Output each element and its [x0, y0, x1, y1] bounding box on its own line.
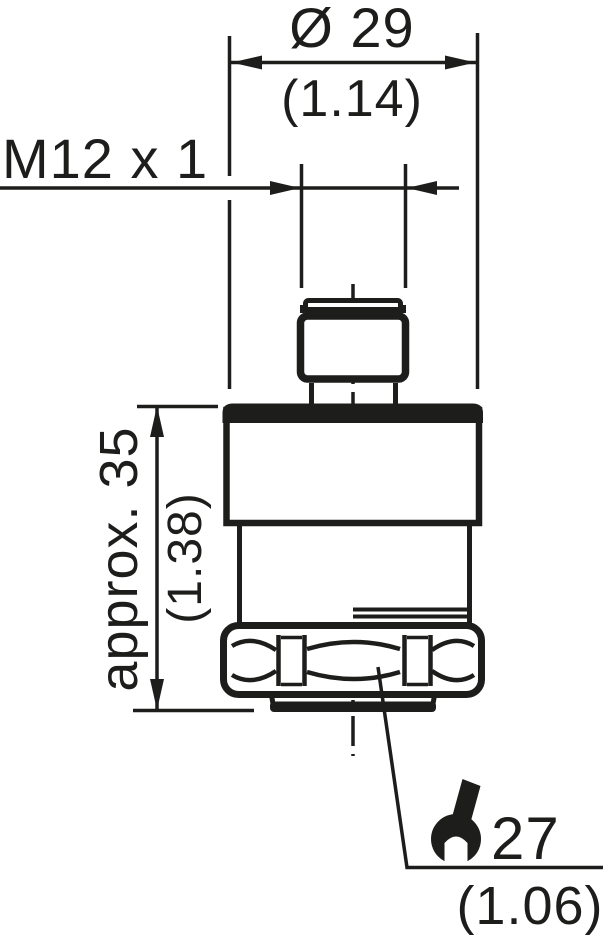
thread-label: M12 x 1 — [2, 127, 208, 190]
height-imperial-label: (1.38) — [159, 492, 212, 623]
top-cap-band — [223, 404, 484, 424]
wrench-icon — [431, 779, 481, 866]
diameter-metric-label: Ø 29 — [289, 0, 414, 59]
arrowhead-left-icon — [232, 56, 263, 70]
wrench-jaw-opening — [445, 837, 468, 867]
thread-block-outline — [301, 316, 406, 379]
arrowhead-right-icon — [270, 181, 300, 195]
arrowhead-right-icon — [445, 56, 476, 70]
wrench-size-imperial-label: (1.06) — [456, 876, 603, 936]
m12-connector-dimensional-drawing: Ø 29 (1.14) M12 x 1 approx. 35 (1.38) 27… — [0, 0, 606, 940]
connector-body — [223, 301, 484, 713]
diameter-imperial-label: (1.14) — [281, 70, 423, 128]
plug-lip-outline — [306, 301, 401, 313]
arrowhead-up-icon — [150, 406, 164, 437]
m12-plug — [301, 301, 406, 406]
wrench-size-metric-label: 27 — [491, 805, 560, 872]
hex-nut — [224, 626, 482, 695]
technical-drawing-page: Ø 29 (1.14) M12 x 1 approx. 35 (1.38) 27… — [0, 0, 606, 940]
hex-nut-outline — [224, 626, 482, 695]
flange-bottom-band — [270, 702, 436, 713]
upper-housing-outline — [227, 410, 480, 523]
height-metric-label: approx. 35 — [89, 426, 149, 691]
arrowhead-left-icon — [407, 181, 437, 195]
arrowhead-down-icon — [150, 679, 164, 710]
